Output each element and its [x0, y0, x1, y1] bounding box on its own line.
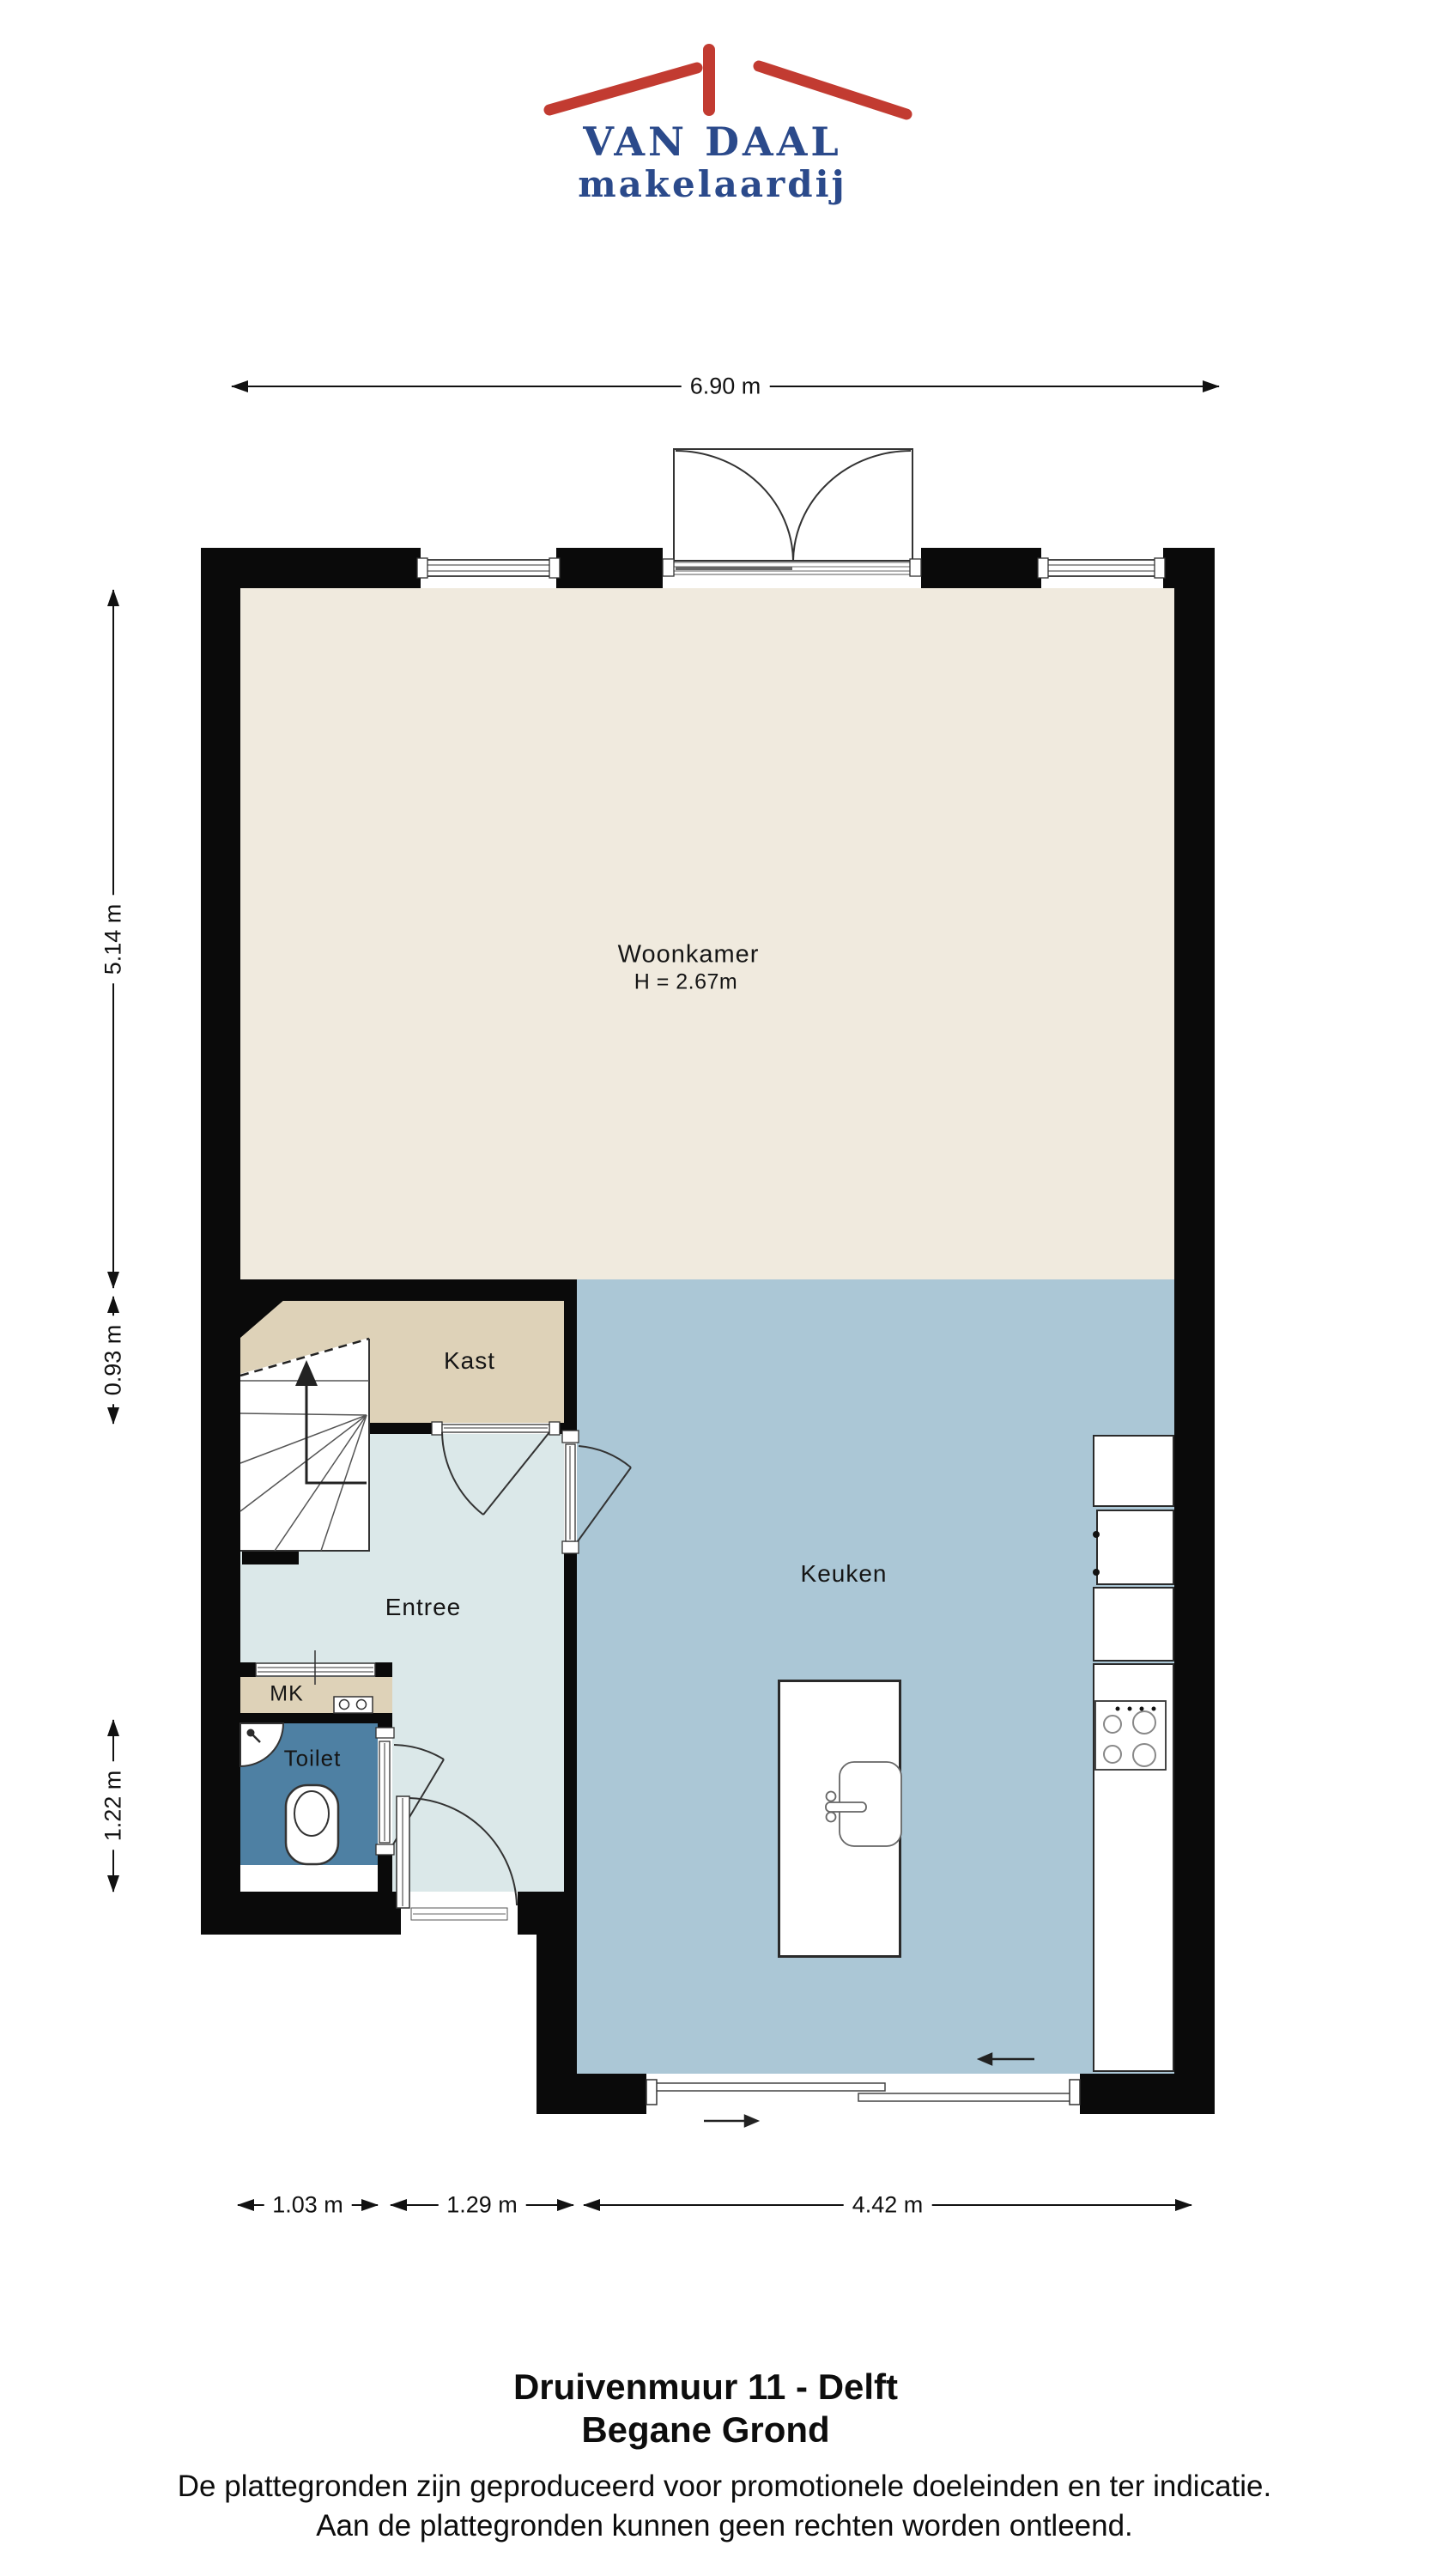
dim-bottom-keuken: 4.42 m	[584, 2193, 1191, 2217]
appliance-latch-icons	[1093, 1531, 1100, 1576]
disclaimer-line2: Aan de plattegronden kunnen geen rechten…	[0, 2509, 1449, 2543]
stove-icon	[1095, 1701, 1166, 1770]
stairs-corner-wall-wedge	[240, 1299, 285, 1338]
dim-top-width-label: 6.90 m	[682, 372, 770, 402]
page-subtitle: Begane Grond	[0, 2409, 1411, 2451]
dim-left-kast-label: 0.93 m	[97, 1316, 130, 1405]
woonkamer-label: Woonkamer	[618, 941, 760, 969]
woonkamer-height-label: H = 2.67m	[634, 970, 738, 995]
toilet-label: Toilet	[284, 1746, 342, 1772]
dim-bottom-entree: 1.29 m	[391, 2193, 573, 2217]
disclaimer-line1: De plattegronden zijn geproduceerd voor …	[0, 2470, 1449, 2504]
kast-label: Kast	[444, 1347, 495, 1375]
keuken-label: Keuken	[801, 1560, 888, 1588]
dim-bottom-entree-label: 1.29 m	[438, 2190, 526, 2221]
entree-label: Entree	[385, 1594, 462, 1621]
dim-bottom-toilet: 1.03 m	[238, 2193, 378, 2217]
french-doors-icon	[663, 449, 921, 576]
mk-label: MK	[270, 1682, 304, 1707]
corner-sink-icon	[240, 1723, 283, 1766]
page-title: Druivenmuur 11 - Delft	[0, 2366, 1411, 2408]
window-top-left-icon	[417, 558, 560, 578]
entree-keuken-door-icon	[562, 1431, 631, 1553]
dim-left-woonkamer: 5.14 m	[101, 590, 125, 1288]
sliding-door-icon	[646, 2054, 1080, 2126]
dim-left-kast: 0.93 m	[101, 1297, 125, 1424]
floorplan-page: VAN DAAL makelaardij	[0, 0, 1449, 2576]
dim-left-woonkamer-label: 5.14 m	[97, 895, 130, 983]
front-door-icon	[397, 1796, 517, 1920]
kast-door-icon	[432, 1422, 560, 1515]
dim-left-toilet: 1.22 m	[101, 1720, 125, 1892]
toilet-icon	[286, 1785, 338, 1864]
window-top-right-icon	[1038, 558, 1165, 578]
sink-icon	[826, 1762, 901, 1846]
dim-bottom-toilet-label: 1.03 m	[264, 2190, 352, 2221]
dim-bottom-keuken-label: 4.42 m	[844, 2190, 932, 2221]
dim-left-toilet-label: 1.22 m	[97, 1762, 130, 1850]
stairs	[240, 1299, 369, 1552]
dim-top-width: 6.90 m	[232, 374, 1219, 398]
